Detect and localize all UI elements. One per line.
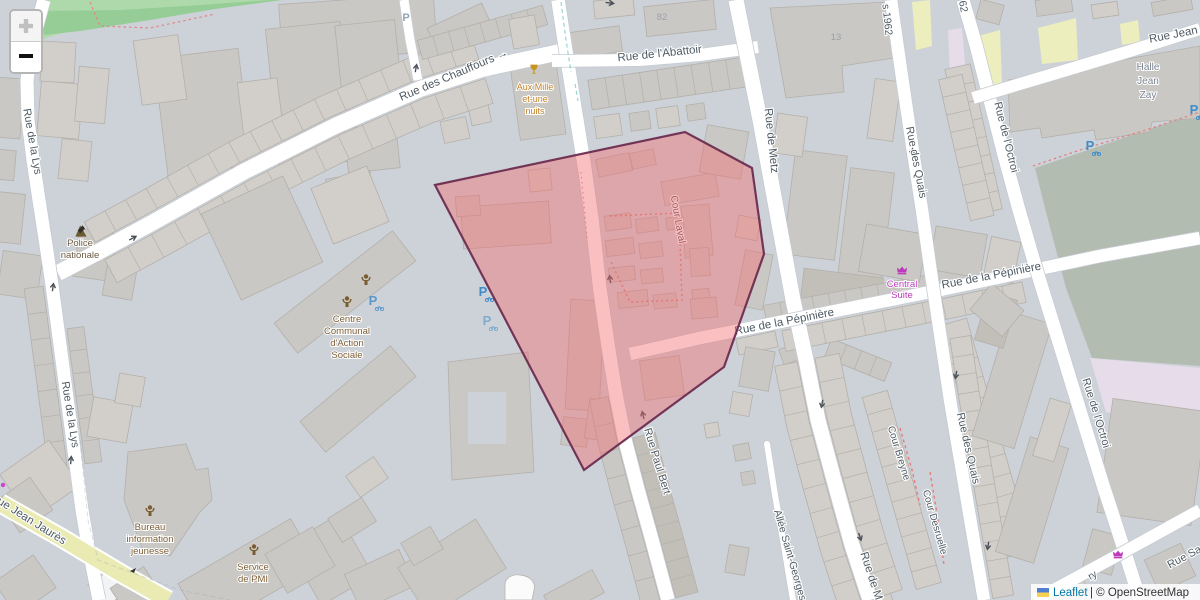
svg-text:P: P — [369, 293, 378, 308]
svg-text:62: 62 — [956, 0, 970, 13]
svg-text:et-une: et-une — [522, 94, 548, 104]
svg-text:Aux Mille: Aux Mille — [517, 82, 554, 92]
svg-text:Suite: Suite — [891, 290, 913, 301]
svg-text:P: P — [1086, 138, 1095, 153]
svg-text:Zay: Zay — [1140, 90, 1157, 101]
svg-text:Centre: Centre — [333, 314, 362, 325]
svg-text:Sociale: Sociale — [331, 350, 362, 361]
svg-text:Communal: Communal — [324, 326, 370, 337]
svg-text:13: 13 — [831, 32, 842, 43]
svg-text:nuits: nuits — [525, 106, 545, 116]
svg-text:d'Action: d'Action — [330, 338, 364, 349]
svg-text:Central: Central — [887, 279, 918, 290]
svg-text:Jean: Jean — [1137, 76, 1159, 87]
svg-text:P: P — [479, 284, 488, 299]
svg-text:information: information — [127, 534, 174, 545]
svg-text:Leaflet: Leaflet — [1053, 587, 1088, 599]
svg-text:Police: Police — [67, 238, 93, 249]
svg-text:Service: Service — [237, 562, 269, 573]
svg-text:| © OpenStreetMap: | © OpenStreetMap — [1090, 587, 1189, 599]
svg-text:P: P — [483, 313, 492, 328]
svg-text:Halle: Halle — [1137, 62, 1160, 73]
svg-text:82: 82 — [657, 12, 668, 23]
svg-text:Bureau: Bureau — [135, 522, 166, 533]
svg-text:P: P — [1190, 102, 1199, 117]
svg-text:nationale: nationale — [61, 250, 100, 261]
svg-text:de PMI: de PMI — [238, 574, 268, 585]
svg-text:P: P — [402, 12, 409, 24]
svg-text:jeunesse: jeunesse — [130, 546, 169, 557]
